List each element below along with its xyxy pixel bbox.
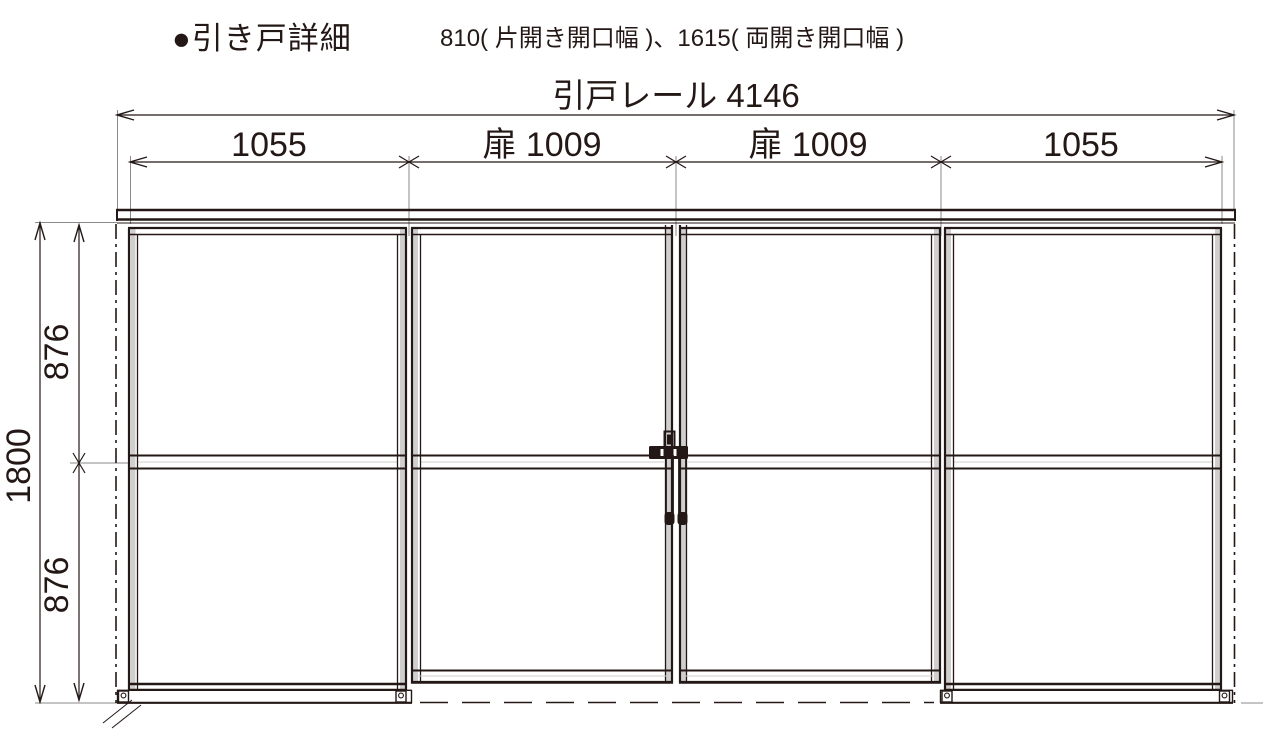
extension-lines (35, 110, 1263, 703)
title-block: ●引き戸詳細 810( 片開き開口幅 )、1615( 両開き開口幅 ) (172, 21, 904, 56)
sill-left (117, 690, 412, 703)
title-note: 810( 片開き開口幅 )、1615( 両開き開口幅 ) (440, 25, 904, 52)
dim-height-lower: 876 (38, 557, 76, 614)
roller-adjuster-icon (399, 693, 404, 698)
dim-height-total: 1800 (0, 428, 38, 504)
dim-seg-4: 1055 (1043, 126, 1119, 164)
page-title: ●引き戸詳細 (172, 21, 352, 56)
roller-adjuster-icon (1222, 693, 1227, 698)
lock-notch (674, 449, 677, 456)
dim-rail-4146: 引戸レール 4146 (117, 77, 1234, 120)
drawing-sheet: ●引き戸詳細 810( 片開き開口幅 )、1615( 両開き開口幅 ) 引戸レー… (0, 0, 1282, 738)
roller-adjuster-icon (945, 693, 950, 698)
dim-seg-3: 扉 1009 (748, 126, 867, 164)
elevation-drawing: ●引き戸詳細 810( 片開き開口幅 )、1615( 両開き開口幅 ) 引戸レー… (0, 0, 1282, 738)
panel-1-fixed (117, 228, 412, 703)
lock-notch (661, 449, 664, 456)
centerlines (116, 224, 1235, 703)
dim-seg-2: 扉 1009 (482, 126, 601, 164)
panel-2-door (411, 225, 673, 684)
panel-4-fixed (940, 228, 1233, 703)
sill-right (940, 690, 1233, 703)
lock-body (649, 446, 688, 459)
corner-tick-marks (103, 700, 141, 728)
dim-rail-label: 引戸レール 4146 (552, 77, 800, 114)
dim-seg-1: 1055 (231, 126, 307, 164)
panel-3-door (679, 225, 941, 684)
dim-segments: 1055 扉 1009 扉 1009 1055 (130, 126, 1222, 168)
dim-height-upper: 876 (38, 324, 76, 381)
roller-adjuster-icon (121, 693, 126, 698)
